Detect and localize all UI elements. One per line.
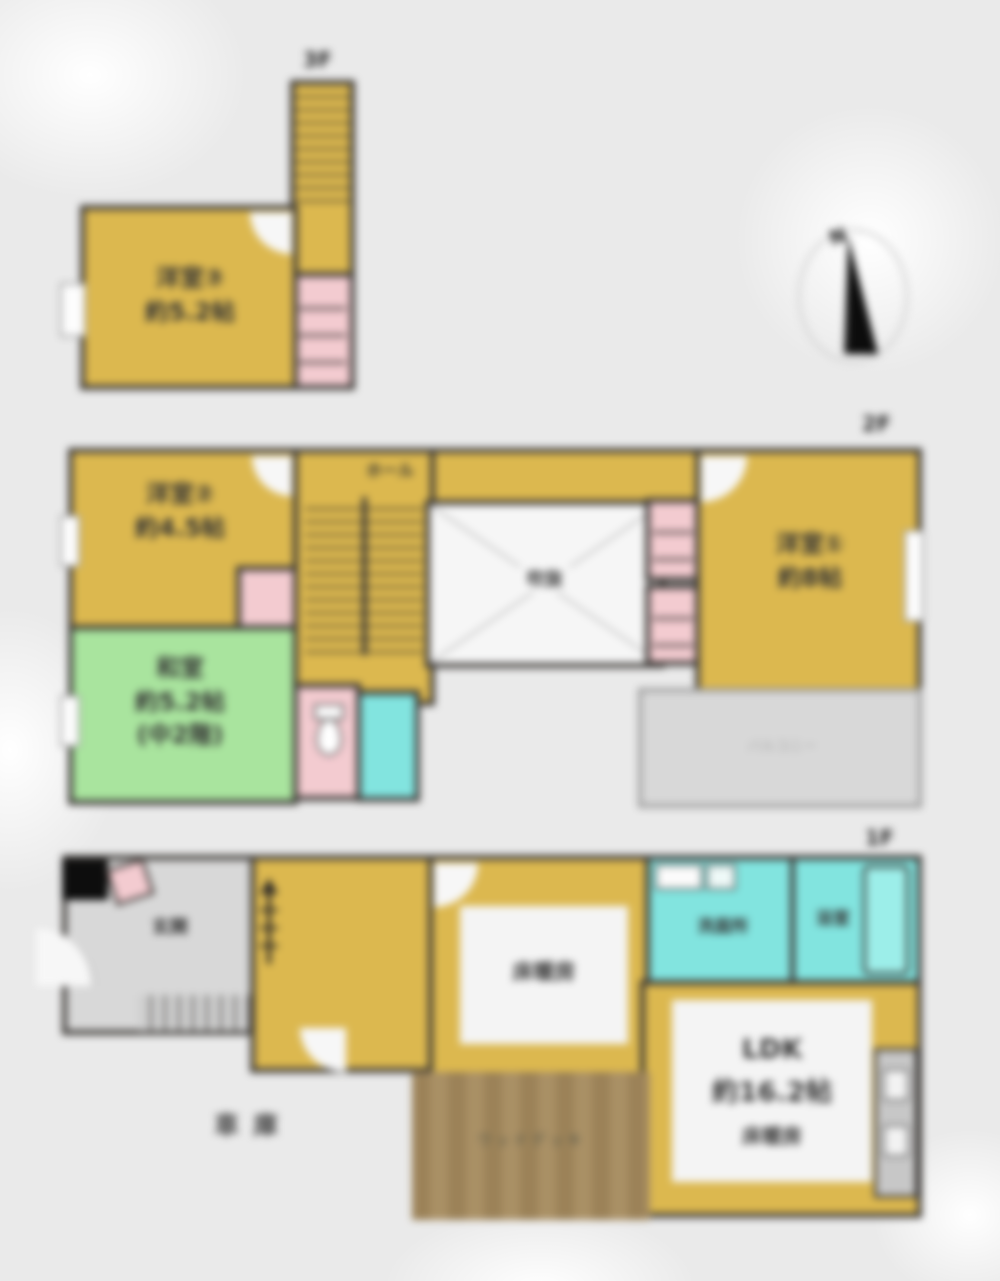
bathroom-label: 浴室: [803, 908, 863, 932]
entrance-door-mat: [62, 860, 108, 900]
wood-deck-label: ウッドデッキ: [456, 1130, 606, 1151]
floor-label-2f: 2F: [862, 412, 891, 436]
toilet-2f: [293, 683, 361, 801]
toilet-icon: [316, 718, 342, 756]
window-icon: [904, 530, 924, 622]
floor-label-3f: 3F: [303, 48, 332, 72]
floor-label-1f: 1F: [865, 826, 894, 850]
wood-deck: ウッドデッキ: [412, 1072, 650, 1220]
room-western-3-label: 洋室③ 約5.2帖: [110, 262, 270, 329]
floor-heating-box: 床暖房: [460, 906, 628, 1044]
stair-divider: [362, 497, 367, 655]
void-label: 吹抜: [505, 567, 585, 592]
closet-2f-a: [236, 566, 298, 630]
compass-icon: N: [788, 208, 918, 373]
sink-icon: [706, 864, 736, 890]
closet-2f-b: [645, 498, 701, 582]
washroom-label: 洗面所: [678, 916, 768, 940]
bathroom: 浴室: [790, 855, 922, 985]
room-japanese-label: 和室 約5.2帖 (中2階): [100, 652, 260, 753]
stairs-1f: [138, 995, 252, 1031]
stairs-3f: [290, 80, 355, 278]
kitchen-counter: [874, 1048, 918, 1198]
bathtub-icon: [863, 865, 909, 975]
stair-up-arrow-icon: [253, 876, 287, 971]
closet-3f: [290, 272, 355, 390]
room-western-1-label: 洋室① 約8帖: [730, 528, 890, 595]
balcony-label: バルコニー: [722, 738, 842, 758]
hall-label: ホール: [340, 460, 440, 482]
kitchen-sink-icon: [883, 1069, 909, 1101]
window-icon: [60, 283, 86, 337]
window-icon: [60, 695, 80, 747]
washer-icon: [655, 864, 703, 890]
room-western-2-label: 洋室② 約4.5帖: [100, 478, 260, 545]
stove-icon: [883, 1125, 909, 1157]
washroom-2f: [356, 690, 420, 802]
balcony: バルコニー: [638, 688, 922, 808]
washroom-1f: 洗面所: [645, 855, 795, 985]
floor-plan: 3F 洋室③ 約5.2帖 N 2F: [0, 0, 1000, 1281]
closet-2f-c: [645, 584, 701, 666]
ldk-label-box: LDK 約16.2帖 床暖房: [672, 1000, 872, 1182]
entrance-label: 玄関: [130, 915, 210, 940]
window-icon: [60, 515, 80, 567]
toilet-tank-icon: [314, 704, 344, 720]
svg-text:N: N: [826, 222, 849, 250]
garage-label: 車庫: [188, 1108, 318, 1143]
floor-heating-label: 床暖房: [494, 958, 594, 987]
void-area: 吹抜: [425, 500, 665, 668]
ldk-label: LDK 約16.2帖 床暖房: [682, 1028, 862, 1152]
